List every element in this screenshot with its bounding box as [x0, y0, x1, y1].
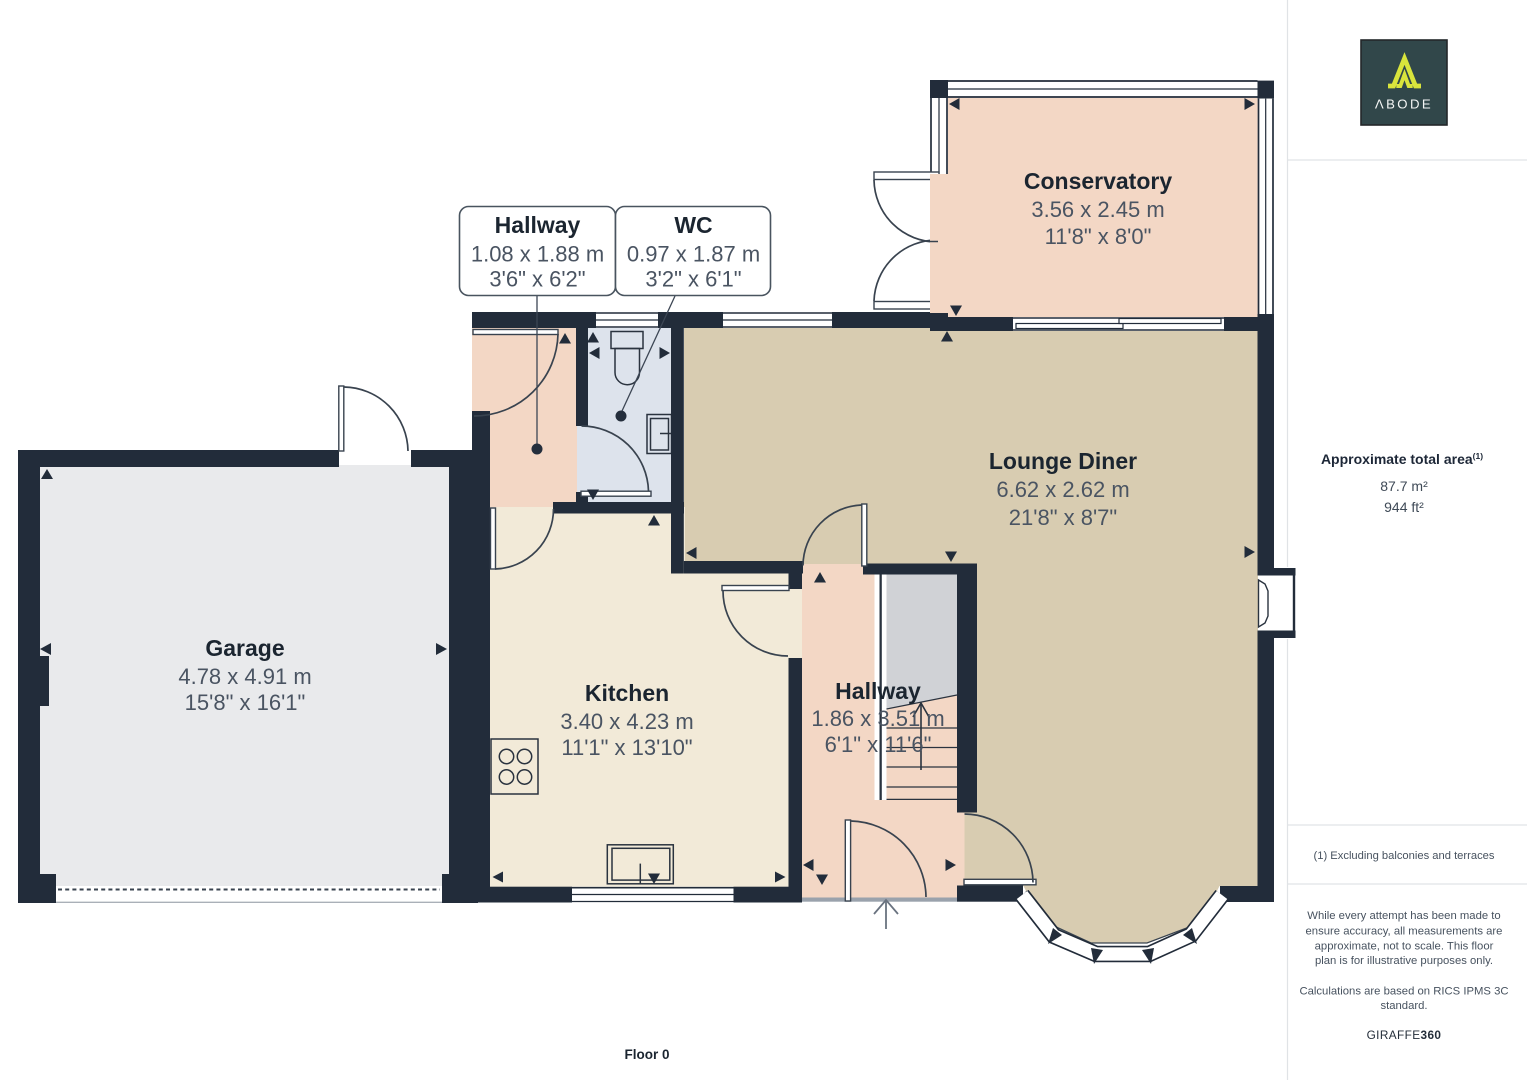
svg-text:Conservatory: Conservatory	[1024, 168, 1172, 194]
svg-text:21'8" x 8'7": 21'8" x 8'7"	[1009, 505, 1117, 530]
svg-text:3'6" x 6'2": 3'6" x 6'2"	[489, 267, 585, 292]
svg-text:GIRAFFE360: GIRAFFE360	[1367, 1028, 1442, 1042]
svg-text:Lounge Diner: Lounge Diner	[989, 448, 1137, 474]
svg-text:944 ft²: 944 ft²	[1384, 499, 1424, 515]
svg-text:0.97 x 1.87 m: 0.97 x 1.87 m	[627, 242, 760, 267]
svg-text:1.08 x 1.88 m: 1.08 x 1.88 m	[471, 242, 604, 267]
svg-text:11'1" x 13'10": 11'1" x 13'10"	[561, 735, 692, 760]
svg-text:Calculations are based on RICS: Calculations are based on RICS IPMS 3C	[1299, 986, 1508, 998]
svg-text:4.78 x 4.91 m: 4.78 x 4.91 m	[178, 664, 311, 689]
svg-text:ensure accuracy, all measureme: ensure accuracy, all measurements are	[1306, 926, 1503, 938]
svg-text:Kitchen: Kitchen	[585, 680, 669, 706]
svg-text:Approximate total area(1): Approximate total area(1)	[1321, 451, 1483, 467]
svg-text:Garage: Garage	[205, 635, 284, 661]
svg-text:6.62 x 2.62 m: 6.62 x 2.62 m	[996, 477, 1129, 502]
svg-text:Hallway: Hallway	[495, 212, 581, 238]
svg-text:3'2" x 6'1": 3'2" x 6'1"	[645, 267, 741, 292]
svg-text:3.56 x 2.45 m: 3.56 x 2.45 m	[1031, 197, 1164, 222]
svg-text:approximate, not to scale. Thi: approximate, not to scale. This floor	[1315, 941, 1494, 953]
svg-text:1.86 x 3.51 m: 1.86 x 3.51 m	[811, 706, 944, 731]
svg-text:6'1" x 11'6": 6'1" x 11'6"	[825, 732, 932, 757]
svg-text:WC: WC	[674, 212, 712, 238]
svg-text:3.40 x 4.23 m: 3.40 x 4.23 m	[560, 709, 693, 734]
svg-text:Hallway: Hallway	[835, 678, 921, 704]
svg-text:ΛBODE: ΛBODE	[1375, 97, 1433, 112]
svg-text:87.7 m²: 87.7 m²	[1380, 478, 1428, 494]
svg-text:(1) Excluding balconies and te: (1) Excluding balconies and terraces	[1314, 850, 1495, 862]
svg-text:15'8" x 16'1": 15'8" x 16'1"	[185, 690, 306, 715]
svg-text:plan is for illustrative purpo: plan is for illustrative purposes only.	[1315, 955, 1493, 967]
svg-text:standard.: standard.	[1380, 1000, 1427, 1012]
svg-text:Floor 0: Floor 0	[624, 1047, 669, 1062]
svg-text:While every attempt has been m: While every attempt has been made to	[1307, 910, 1500, 922]
svg-text:11'8" x 8'0": 11'8" x 8'0"	[1045, 224, 1152, 249]
